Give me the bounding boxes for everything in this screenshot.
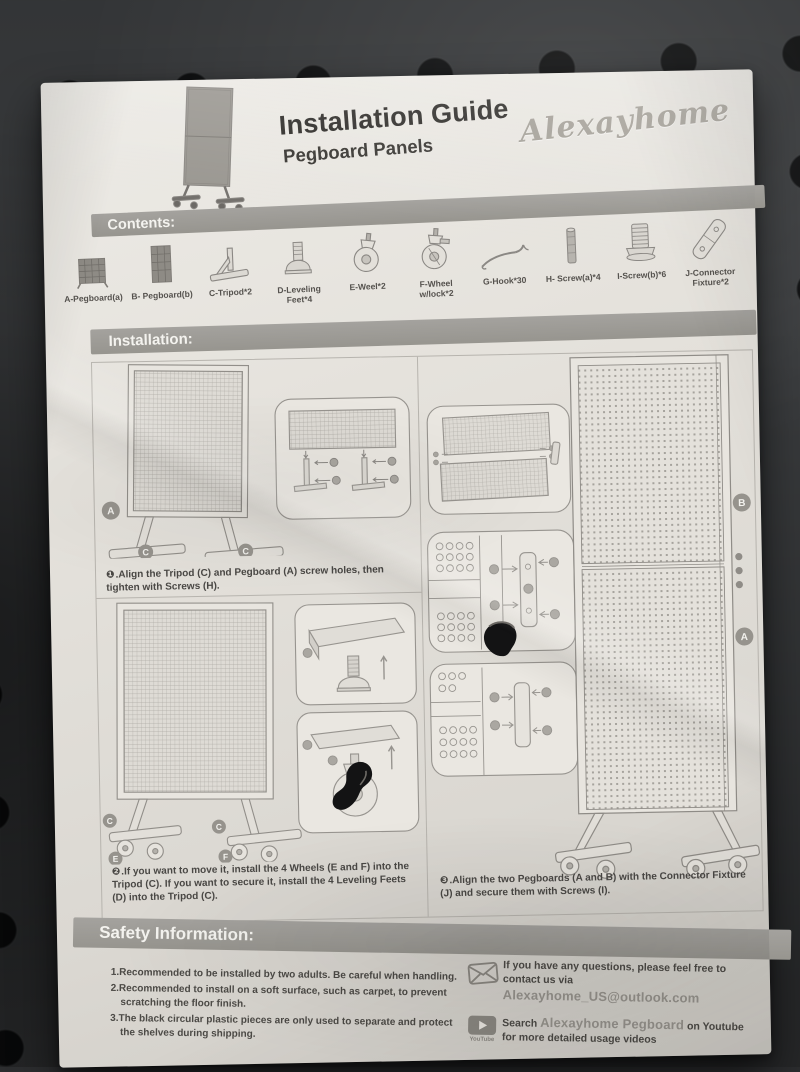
- svg-text:C: C: [242, 546, 249, 556]
- youtube-contact-row: YouTube Search Alexayhome Pegboard on Yo…: [462, 1012, 765, 1049]
- step1-cell: A C C: [92, 357, 421, 599]
- svg-text:C: C: [107, 816, 113, 826]
- wheel-icon: [345, 229, 387, 281]
- contents-item-label: E-Weel*2: [349, 282, 386, 293]
- contents-item: J-Connector Fixture*2: [674, 214, 746, 289]
- contents-item-label: J-Connector Fixture*2: [676, 267, 745, 289]
- step2-text: .If you want to move it, install the 4 W…: [112, 861, 409, 904]
- svg-text:B: B: [738, 498, 745, 509]
- step2-caption: ❷.If you want to move it, install the 4 …: [112, 860, 420, 905]
- svg-text:F: F: [223, 852, 228, 862]
- safety-list: 1.Recommended to be installed by two adu…: [110, 966, 463, 1046]
- contents-item-label: H- Screw(a)*4: [546, 273, 601, 285]
- contents-item: F-Wheel w/lock*2: [399, 225, 471, 300]
- contents-item-label: G-Hook*30: [483, 276, 527, 288]
- contents-item-label: C-Tripod*2: [209, 287, 252, 299]
- pegboard-a-icon: [72, 240, 112, 292]
- step3-diagram: B A: [420, 352, 762, 882]
- email-prefix: If you have any questions, please feel f…: [503, 959, 726, 986]
- email-address: Alexayhome_US@outlook.com: [503, 988, 700, 1006]
- contents-item: H- Screw(a)*4: [537, 219, 608, 285]
- contents-item-label: D-Leveling Feet*4: [265, 284, 334, 306]
- contents-item: G-Hook*30: [468, 222, 539, 288]
- step2-cell: C E C F: [97, 593, 428, 923]
- screw-b-icon: [619, 217, 661, 269]
- youtube-icon: YouTube: [462, 1012, 503, 1043]
- youtube-mid: on Youtube: [684, 1020, 744, 1033]
- contents-item: A-Pegboard(a): [57, 240, 128, 306]
- photo-of-installation-guide: { "page": { "title": "Installation Guide…: [0, 0, 800, 1067]
- svg-text:C: C: [142, 547, 149, 557]
- contents-item: I-Screw(b)*6: [605, 217, 676, 283]
- svg-text:A: A: [107, 506, 114, 517]
- email-contact-text: If you have any questions, please feel f…: [503, 958, 766, 1008]
- screw-a-icon: [559, 220, 585, 271]
- youtube-channel: Alexayhome Pegboard: [540, 1015, 684, 1033]
- contents-item-label: I-Screw(b)*6: [617, 270, 666, 282]
- contents-item: E-Weel*2: [331, 228, 402, 294]
- contents-item: D-Leveling Feet*4: [262, 231, 334, 306]
- youtube-caption: YouTube: [469, 1036, 494, 1042]
- pegboard-b-icon: [143, 237, 179, 288]
- step3-caption: ❸.Align the two Pegboards (A and B) with…: [440, 868, 754, 900]
- svg-text:E: E: [113, 854, 119, 864]
- envelope-icon: [463, 957, 503, 986]
- svg-text:A: A: [741, 632, 748, 643]
- contents-item: C-Tripod*2: [194, 234, 265, 300]
- safety-header-label: Safety Information:: [99, 923, 254, 946]
- contents-item-label: A-Pegboard(a): [64, 293, 123, 305]
- step1-caption: ❶.Align the Tripod (C) and Pegboard (A) …: [106, 563, 413, 595]
- step2-diagram: C E C F: [97, 597, 426, 865]
- svg-text:C: C: [216, 822, 222, 832]
- contact-block: If you have any questions, please feel f…: [462, 957, 766, 1058]
- wheel-lock-icon: [414, 226, 456, 278]
- step1-diagram: A C C: [92, 357, 420, 559]
- tripod-icon: [206, 234, 252, 286]
- hook-icon: [476, 223, 530, 275]
- brand-logo: Alexayhome: [518, 93, 732, 150]
- safety-item: 2.Recommended to install on a soft surfa…: [110, 981, 462, 1015]
- step3-cell: B A ❸.Align the two Pegboards (A and B) …: [418, 350, 763, 916]
- title-block: Installation Guide Pegboard Panels: [278, 94, 512, 168]
- youtube-contact-text: Search Alexayhome Pegboard on Youtube fo…: [502, 1013, 744, 1049]
- contents-item-label: B- Pegboard(b): [131, 290, 193, 302]
- step2-marker: ❷: [112, 867, 121, 878]
- step3-text: .Align the two Pegboards (A and B) with …: [440, 870, 746, 900]
- step1-marker: ❶: [106, 570, 115, 581]
- installation-left-column: A C C: [92, 357, 429, 923]
- contents-item: B- Pegboard(b): [125, 237, 196, 303]
- leveling-foot-icon: [277, 232, 319, 284]
- installation-header-label: Installation:: [108, 330, 193, 349]
- contents-header-label: Contents:: [107, 214, 175, 233]
- connector-fixture-icon: [684, 214, 734, 266]
- step3-marker: ❸: [440, 875, 449, 886]
- installation-guide-sheet: Installation Guide Pegboard Panels Alexa…: [41, 69, 772, 1067]
- youtube-prefix: Search: [502, 1017, 540, 1030]
- email-contact-row: If you have any questions, please feel f…: [463, 957, 766, 1008]
- contents-item-label: F-Wheel w/lock*2: [402, 278, 471, 300]
- step1-text: .Align the Tripod (C) and Pegboard (A) s…: [106, 564, 384, 593]
- safety-item: 3.The black circular plastic pieces are …: [110, 1011, 462, 1045]
- safety-section-header: Safety Information:: [73, 917, 791, 960]
- youtube-suffix: for more detailed usage videos: [502, 1032, 657, 1047]
- product-thumbnail-pegboard: [137, 80, 278, 215]
- installation-diagram-grid: A C C: [91, 349, 764, 924]
